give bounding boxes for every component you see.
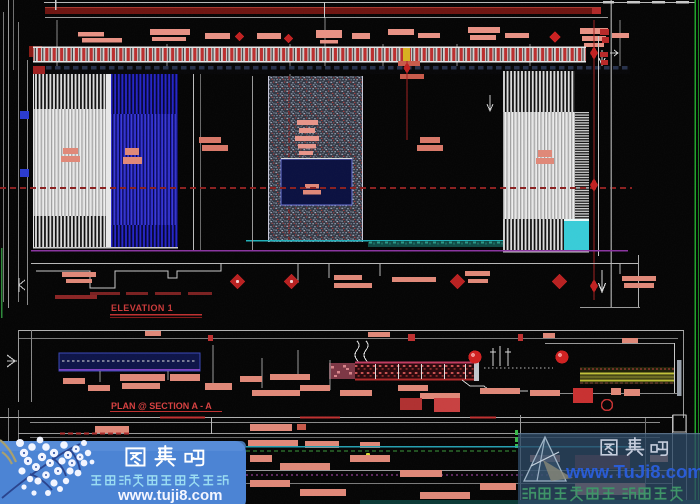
svg-text:www.tuji8.com: www.tuji8.com — [117, 487, 222, 504]
svg-text:www.TuJi8.com: www.TuJi8.com — [565, 461, 700, 482]
